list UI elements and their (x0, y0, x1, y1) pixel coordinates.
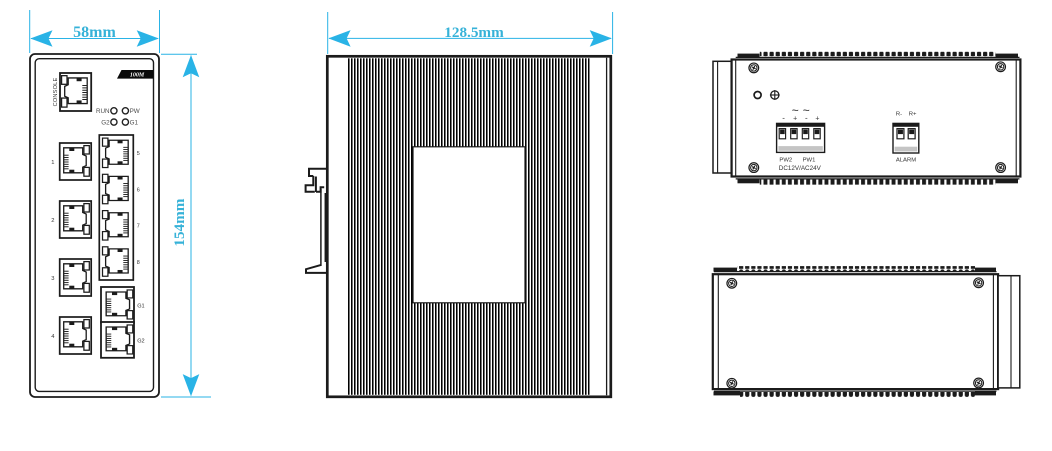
svg-text:R+: R+ (909, 112, 917, 118)
svg-text:PW: PW (130, 108, 140, 115)
svg-text:8: 8 (137, 260, 140, 266)
svg-text:2: 2 (51, 218, 54, 224)
svg-text:G2: G2 (101, 120, 110, 127)
svg-text:3: 3 (51, 276, 54, 282)
svg-text:ALARM: ALARM (896, 158, 916, 164)
svg-text:58mm: 58mm (73, 24, 116, 41)
svg-text:+: + (815, 116, 819, 123)
svg-text:7: 7 (137, 224, 140, 230)
svg-text:G1: G1 (130, 120, 139, 127)
svg-text:RUN: RUN (96, 108, 110, 115)
svg-text:5: 5 (137, 151, 140, 157)
svg-text:G2: G2 (137, 339, 144, 345)
svg-text:6: 6 (137, 187, 140, 193)
svg-text:CONSOLE: CONSOLE (53, 78, 59, 107)
svg-text:PW2: PW2 (779, 158, 792, 164)
svg-text:100M: 100M (130, 73, 145, 79)
svg-text:DC12V/AC24V: DC12V/AC24V (779, 165, 822, 172)
svg-text:+: + (793, 116, 797, 123)
svg-text:154mm: 154mm (171, 198, 188, 246)
svg-text:128.5mm: 128.5mm (444, 24, 504, 41)
svg-text:1: 1 (51, 160, 54, 166)
svg-text:-: - (782, 114, 785, 123)
svg-text:G1: G1 (137, 304, 144, 310)
svg-text:R-: R- (896, 112, 902, 118)
svg-text:PW1: PW1 (803, 158, 816, 164)
svg-text:-: - (805, 114, 808, 123)
